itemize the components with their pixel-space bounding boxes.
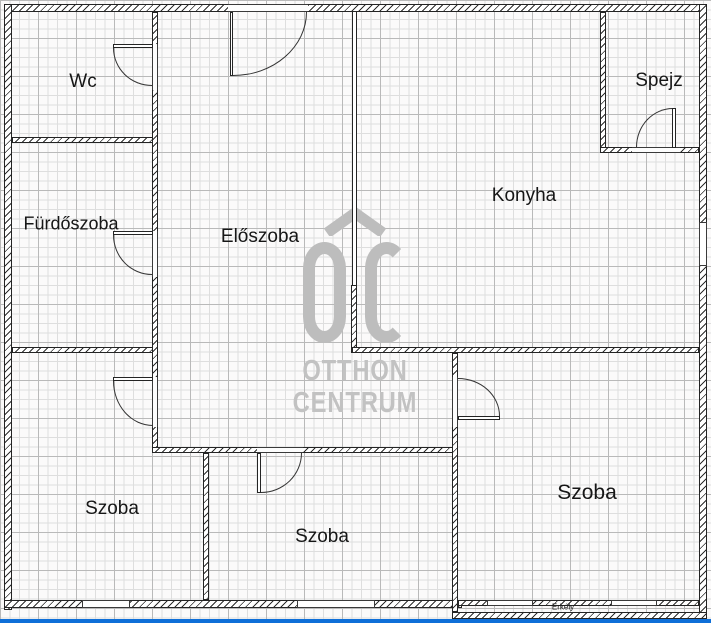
- door-leaf-room-bottom-left: [113, 377, 153, 381]
- door-leaf-pantry: [672, 108, 676, 148]
- bottom-accent-bar: [0, 619, 711, 623]
- watermark-letter-c: [365, 242, 408, 343]
- wall-pantry-west: [600, 12, 606, 153]
- room-label-spejz: Spejz: [635, 70, 683, 92]
- room-label-eloszoba: Előszoba: [221, 226, 299, 248]
- wall-hall-south: [152, 447, 458, 453]
- watermark-line2: CENTRUM: [293, 387, 418, 420]
- wall-bathroom-bottom: [12, 347, 153, 353]
- wall-between-bottom-rooms: [203, 453, 209, 600]
- wall-outer-top: [4, 4, 707, 12]
- watermark-letter-o: [303, 242, 346, 343]
- room-label-erkely: Erkély: [552, 603, 574, 612]
- wall-kitchen-south: [352, 347, 699, 353]
- room-label-szoba-bottom-left: Szoba: [85, 498, 139, 520]
- watermark-line1: OTTHON: [302, 355, 407, 388]
- wall-kitchen-partition: [352, 12, 357, 287]
- door-opening-wc: [152, 44, 158, 90]
- door-opening-bathroom: [152, 231, 158, 277]
- wall-outer-bottom: [4, 600, 462, 608]
- room-label-furdoszoba: Fürdőszoba: [23, 214, 118, 235]
- room-label-wc: Wc: [69, 71, 96, 93]
- room-label-konyha: Konyha: [492, 185, 556, 207]
- door-leaf-room-middle: [257, 453, 261, 493]
- door-opening-entrance: [228, 4, 308, 12]
- floor-plan: OTTHON CENTRUM Wc Fürdőszoba Előszo: [0, 0, 711, 624]
- window-room-bottom-left: [82, 600, 130, 608]
- door-leaf-bathroom: [113, 231, 153, 235]
- door-leaf-wc: [113, 44, 153, 48]
- wall-outer-right: [699, 4, 707, 620]
- wall-outer-left: [4, 4, 12, 610]
- room-label-szoba-middle: Szoba: [295, 526, 349, 548]
- wall-wc-bottom: [12, 137, 153, 143]
- door-leaf-entrance: [230, 12, 233, 76]
- room-label-szoba-bottom-right: Szoba: [557, 481, 617, 505]
- window-room-middle: [297, 600, 375, 608]
- wall-balcony-bottom: [452, 612, 707, 619]
- wall-kitchen-west-lower: [351, 285, 357, 353]
- window-kitchen-east: [699, 222, 707, 266]
- window-balcony-left: [487, 600, 533, 606]
- window-balcony-right: [611, 600, 657, 606]
- door-leaf-room-bottom-right: [458, 416, 500, 420]
